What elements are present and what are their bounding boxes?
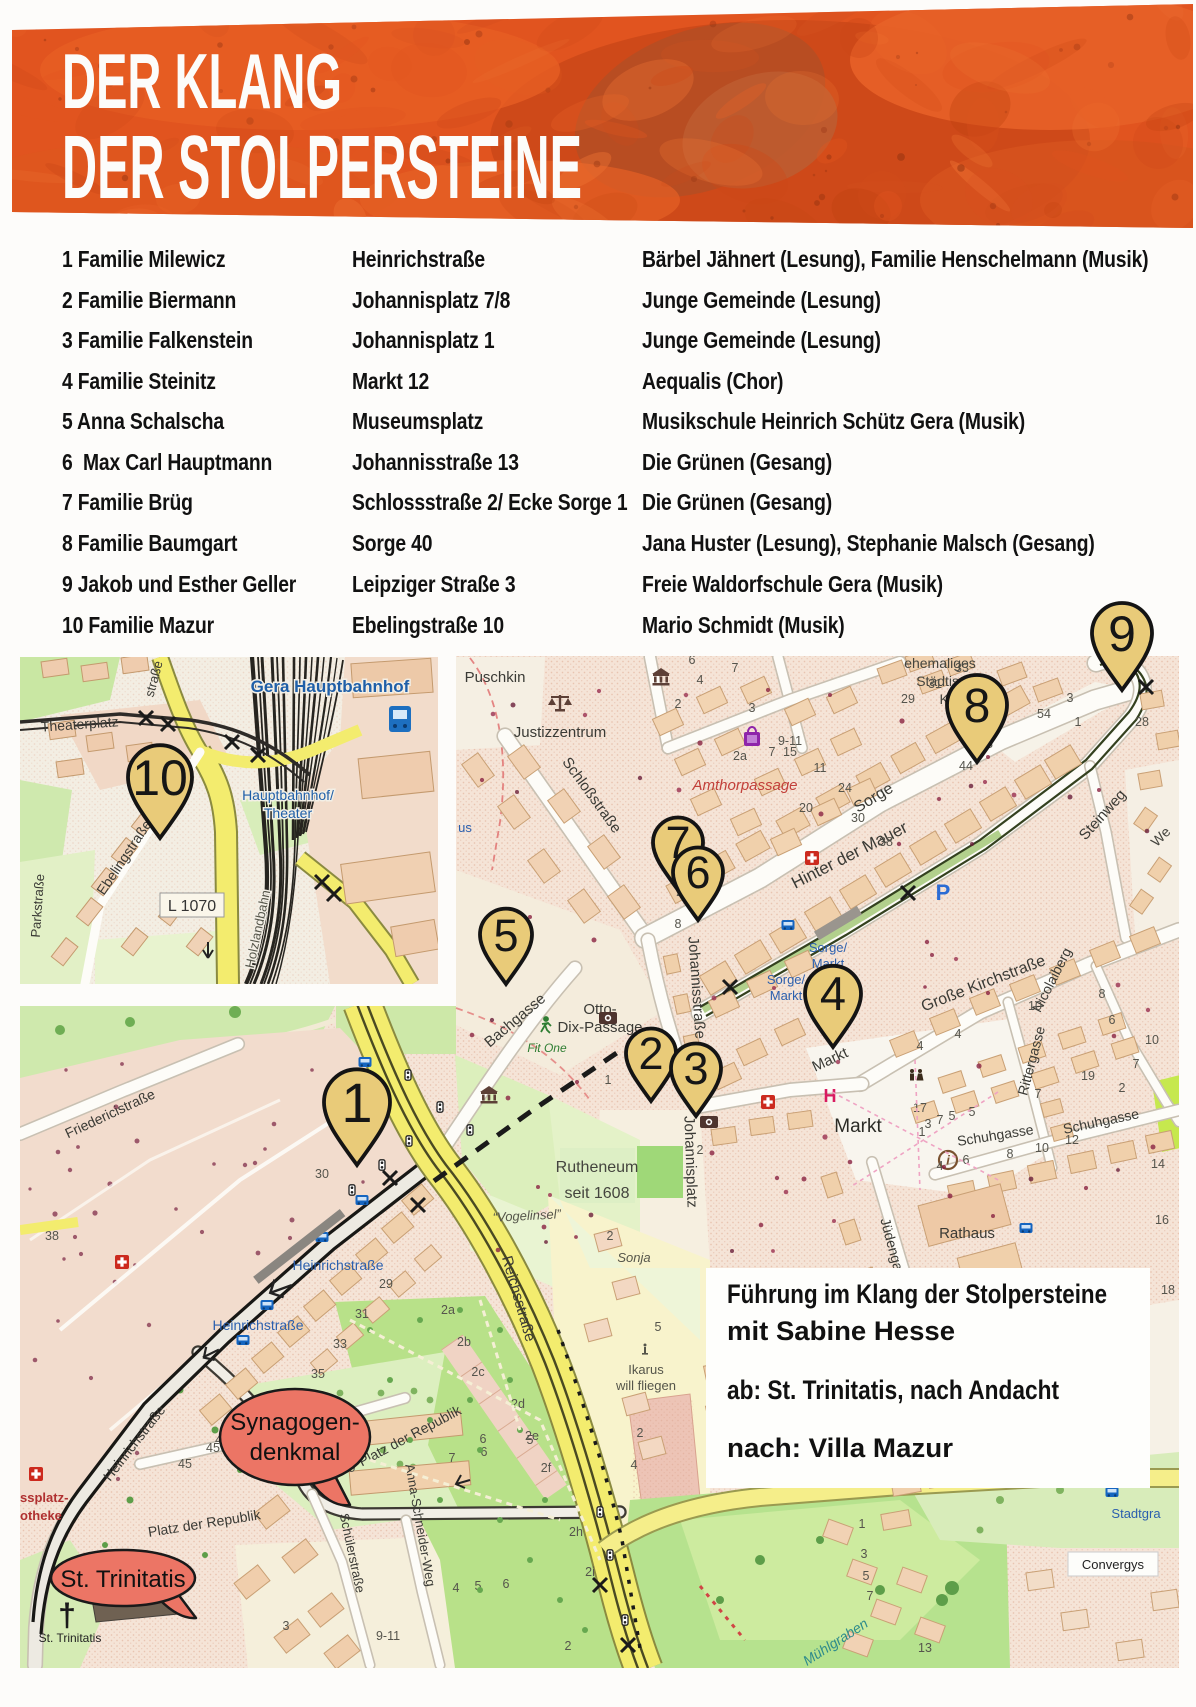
svg-text:8: 8 (1099, 987, 1106, 1001)
svg-text:nach: Villa Mazur: nach: Villa Mazur (727, 1433, 954, 1463)
svg-text:31: 31 (928, 677, 942, 691)
svg-text:7: 7 (732, 661, 739, 675)
svg-text:29: 29 (901, 692, 915, 706)
svg-text:Rutheneum: Rutheneum (556, 1159, 639, 1176)
svg-text:4: 4 (917, 1039, 924, 1053)
svg-text:54: 54 (1037, 707, 1051, 721)
svg-text:DER KLANG: DER KLANG (62, 37, 342, 125)
svg-text:5: 5 (949, 1109, 956, 1123)
svg-text:1: 1 (919, 1125, 926, 1139)
svg-text:otheke: otheke (20, 1508, 62, 1523)
svg-text:Convergys: Convergys (1082, 1557, 1145, 1572)
svg-text:33: 33 (333, 1337, 347, 1351)
svg-text:Theater: Theater (264, 805, 313, 821)
svg-text:Sorge/: Sorge/ (809, 940, 848, 955)
svg-text:3: 3 (861, 1547, 868, 1561)
svg-text:2a: 2a (733, 749, 747, 763)
svg-text:3: 3 (283, 1619, 290, 1633)
svg-text:L 1070: L 1070 (168, 898, 216, 915)
svg-text:10: 10 (1035, 1141, 1049, 1155)
svg-text:Heinrichstraße: Heinrichstraße (292, 1257, 383, 1273)
svg-text:will fliegen: will fliegen (615, 1378, 676, 1393)
svg-text:4: 4 (631, 1458, 638, 1472)
svg-text:i: i (946, 1153, 950, 1168)
svg-text:Fit One: Fit One (527, 1041, 567, 1055)
svg-text:30: 30 (851, 811, 865, 825)
svg-text:2: 2 (638, 1028, 663, 1079)
svg-text:4: 4 (955, 1027, 962, 1041)
svg-text:denkmal: denkmal (250, 1439, 341, 1466)
svg-text:18: 18 (1161, 1283, 1175, 1297)
svg-text:Heinrichstraße: Heinrichstraße (212, 1317, 303, 1333)
svg-text:Ikarus: Ikarus (628, 1362, 664, 1377)
svg-text:1: 1 (341, 1071, 372, 1134)
svg-text:6: 6 (503, 1577, 510, 1591)
svg-text:Johannisplatz: Johannisplatz (680, 1116, 700, 1208)
svg-text:Markt: Markt (770, 988, 803, 1003)
svg-text:2: 2 (697, 1143, 704, 1157)
svg-text:4: 4 (697, 673, 704, 687)
svg-text:6: 6 (685, 847, 710, 898)
svg-text:7: 7 (1035, 1087, 1042, 1101)
svg-text:Hauptbahnhof/: Hauptbahnhof/ (242, 787, 334, 803)
svg-text:Stadtgra: Stadtgra (1111, 1506, 1161, 1521)
svg-text:1: 1 (1075, 715, 1082, 729)
svg-text:7: 7 (449, 1451, 456, 1465)
svg-text:17: 17 (913, 1101, 927, 1115)
svg-text:ab: St. Trinitatis, nach Andac: ab: St. Trinitatis, nach Andacht (727, 1375, 1059, 1405)
svg-text:7: 7 (867, 1589, 874, 1603)
svg-text:35: 35 (311, 1367, 325, 1381)
svg-text:10: 10 (1145, 1033, 1159, 1047)
svg-text:4: 4 (453, 1581, 460, 1595)
svg-text:H: H (824, 1086, 837, 1106)
svg-text:5: 5 (527, 1433, 534, 1447)
svg-text:9-11: 9-11 (376, 1629, 400, 1643)
svg-text:5: 5 (493, 910, 518, 961)
svg-text:2b: 2b (457, 1335, 471, 1349)
svg-text:30: 30 (315, 1167, 329, 1181)
svg-text:24: 24 (838, 781, 852, 795)
svg-text:3: 3 (1067, 691, 1074, 705)
svg-text:Führung im Klang der Stolperst: Führung im Klang der Stolpersteine (727, 1279, 1107, 1309)
svg-text:2i: 2i (585, 1565, 595, 1579)
svg-text:8: 8 (1007, 1147, 1014, 1161)
svg-text:3: 3 (683, 1043, 708, 1094)
svg-text:ssplatz-: ssplatz- (20, 1490, 68, 1505)
svg-text:6: 6 (689, 653, 696, 667)
svg-text:10: 10 (132, 750, 188, 806)
svg-text:Sonja: Sonja (617, 1250, 650, 1265)
svg-text:33: 33 (955, 661, 969, 675)
svg-text:Sorge/: Sorge/ (767, 972, 806, 987)
svg-text:44: 44 (959, 759, 973, 773)
svg-text:28: 28 (1135, 715, 1149, 729)
svg-text:12: 12 (1065, 1133, 1079, 1147)
svg-text:9-11: 9-11 (778, 734, 802, 748)
svg-text:Justizzentrum: Justizzentrum (514, 724, 607, 741)
svg-text:11: 11 (814, 761, 827, 775)
svg-text:6: 6 (480, 1432, 487, 1446)
svg-text:9: 9 (1108, 606, 1136, 662)
svg-text:2: 2 (607, 1229, 614, 1243)
svg-text:2: 2 (1119, 1081, 1126, 1095)
svg-text:6: 6 (1109, 1013, 1116, 1027)
svg-text:31: 31 (355, 1307, 369, 1321)
svg-text:13: 13 (918, 1641, 932, 1655)
svg-text:2a: 2a (441, 1303, 455, 1317)
svg-text:7: 7 (937, 1113, 944, 1127)
svg-text:5: 5 (863, 1569, 870, 1583)
svg-text:38: 38 (879, 835, 893, 849)
svg-text:Rathaus: Rathaus (939, 1225, 995, 1242)
svg-text:St. Trinitatis: St. Trinitatis (60, 1566, 185, 1593)
svg-text:Amthorpassage: Amthorpassage (691, 777, 797, 794)
svg-text:3: 3 (925, 1117, 932, 1131)
svg-text:Synagogen-: Synagogen- (230, 1409, 359, 1436)
svg-text:45: 45 (206, 1441, 220, 1455)
svg-text:P: P (936, 880, 951, 905)
svg-text:45: 45 (178, 1457, 192, 1471)
svg-text:5: 5 (655, 1320, 662, 1334)
svg-text:2f: 2f (541, 1461, 552, 1475)
svg-text:8: 8 (964, 680, 991, 733)
svg-text:7: 7 (769, 745, 776, 759)
svg-text:1: 1 (859, 1517, 866, 1531)
svg-text:16: 16 (1155, 1213, 1169, 1227)
svg-text:7: 7 (1133, 1057, 1140, 1071)
svg-text:1: 1 (605, 1073, 612, 1087)
svg-text:mit Sabine Hesse: mit Sabine Hesse (727, 1316, 955, 1346)
svg-text:St. Trinitatis: St. Trinitatis (39, 1631, 102, 1645)
svg-text:29: 29 (379, 1277, 393, 1291)
svg-text:8: 8 (675, 917, 682, 931)
svg-text:Markt: Markt (834, 1116, 882, 1137)
svg-text:2: 2 (637, 1426, 644, 1440)
svg-text:Puschkin: Puschkin (465, 669, 526, 686)
svg-text:10: 10 (1028, 999, 1042, 1013)
svg-text:4: 4 (820, 967, 846, 1020)
svg-text:2: 2 (675, 697, 682, 711)
svg-text:DER STOLPERSTEINE: DER STOLPERSTEINE (62, 118, 582, 218)
svg-text:us: us (458, 820, 472, 835)
svg-text:seit 1608: seit 1608 (565, 1185, 630, 1202)
svg-text:2: 2 (565, 1639, 572, 1653)
svg-text:14: 14 (1151, 1157, 1165, 1171)
svg-text:†: † (58, 1597, 76, 1633)
svg-text:Gera Hauptbahnhof: Gera Hauptbahnhof (251, 677, 410, 696)
svg-text:3: 3 (749, 701, 756, 715)
svg-text:2c: 2c (471, 1365, 484, 1379)
svg-text:19: 19 (1081, 1069, 1095, 1083)
svg-text:2h: 2h (569, 1525, 583, 1539)
svg-text:20: 20 (799, 801, 813, 815)
